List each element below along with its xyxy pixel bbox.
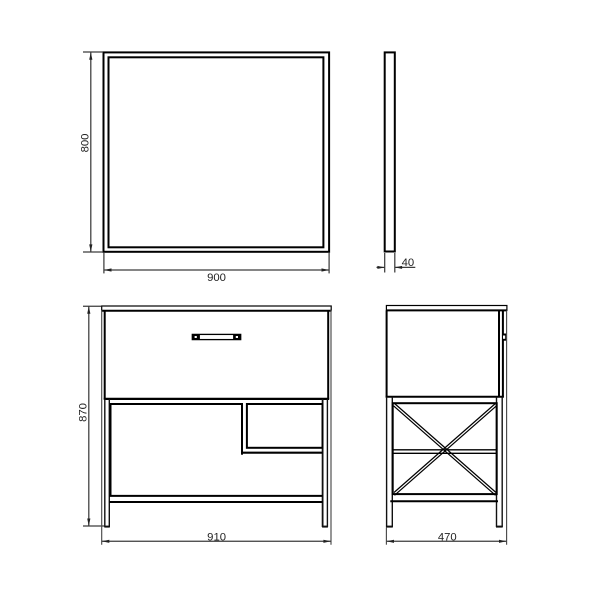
- svg-text:910: 910: [207, 531, 226, 543]
- svg-text:870: 870: [77, 403, 89, 422]
- svg-text:470: 470: [438, 531, 457, 543]
- svg-text:900: 900: [207, 272, 226, 284]
- svg-text:800: 800: [80, 134, 92, 153]
- svg-text:40: 40: [402, 257, 415, 269]
